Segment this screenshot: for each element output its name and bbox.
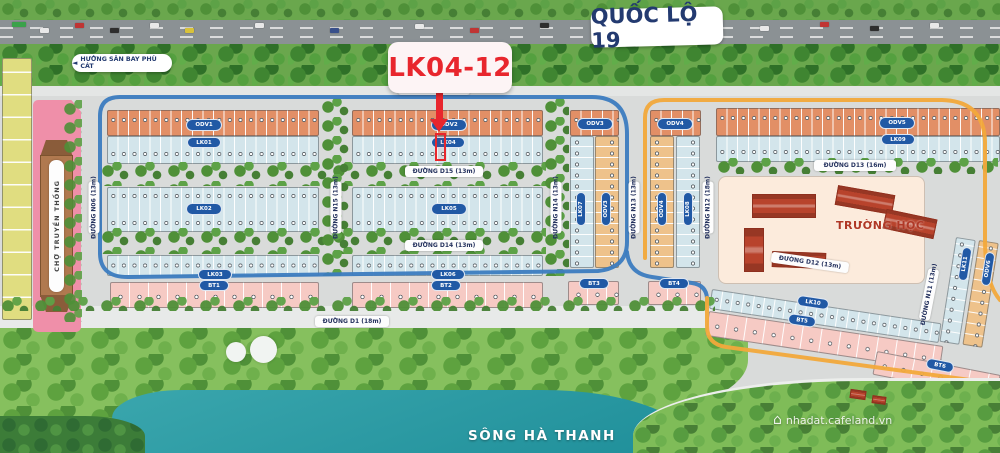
label-odv4: ODV4 xyxy=(657,192,667,226)
road-label-d13: ĐƯỜNG D13 (16m) xyxy=(814,160,896,171)
callout-arrow-shaft xyxy=(436,90,443,121)
label-lk09: LK09 xyxy=(881,134,915,145)
label-odv5: ODV5 xyxy=(879,117,915,129)
road-label-n12: ĐƯỜNG N12 (18m) xyxy=(703,182,714,234)
road-label-d1: ĐƯỜNG D1 (18m) xyxy=(315,316,389,327)
label-lk07: LK07 xyxy=(576,192,586,226)
label-odv3-header: ODV3 xyxy=(577,118,613,130)
river-label: SÔNG HÀ THANH xyxy=(468,428,616,444)
highlighted-lot-lk04-12 xyxy=(435,133,446,161)
label-odv1: ODV1 xyxy=(186,119,222,131)
callout-arrow-head xyxy=(430,119,448,132)
label-odv3: ODV3 xyxy=(601,192,611,226)
road-label-d15: ĐƯỜNG D15 (13m) xyxy=(405,166,483,177)
direction-sign-label: HƯỚNG SÂN BAY PHÙ CÁT xyxy=(80,56,172,70)
label-bt1: BT1 xyxy=(199,280,229,291)
watermark-text: nhadat.cafeland.vn xyxy=(786,414,892,427)
label-odv4-header: ODV4 xyxy=(657,118,693,130)
watermark: ⌂ nhadat.cafeland.vn xyxy=(773,412,892,428)
site-plan-map: CHỢ TRUYỀN THỐNG ODV1 xyxy=(0,0,1000,453)
callout-box: LK04-12 xyxy=(388,42,512,93)
road-label-n15: ĐƯỜNG N15 (13m) xyxy=(331,182,342,234)
road-label-n13: ĐƯỜNG N13 (13m) xyxy=(629,182,640,234)
label-lk05: LK05 xyxy=(431,203,467,215)
label-lk02: LK02 xyxy=(186,203,222,215)
road-blue-extension xyxy=(627,252,707,298)
riverbank-bushes xyxy=(0,416,145,453)
road-label-n06: ĐƯỜNG N06 (13m) xyxy=(89,182,100,234)
left-arrow-icon: ◄ xyxy=(72,59,77,67)
label-bt2: BT2 xyxy=(431,280,461,291)
road-label-n14: ĐƯỜNG N14 (13m) xyxy=(551,182,562,234)
label-lk08: LK08 xyxy=(683,192,693,226)
road-orange-loop xyxy=(645,100,1000,300)
label-bt4: BT4 xyxy=(659,278,689,289)
highway-sign: QUỐC LỘ 19 xyxy=(591,6,724,47)
watermark-house-icon: ⌂ xyxy=(773,412,782,428)
label-lk01: LK01 xyxy=(187,137,221,148)
direction-sign: ◄ HƯỚNG SÂN BAY PHÙ CÁT xyxy=(72,54,172,72)
road-orange-diagonal xyxy=(707,298,1000,384)
label-lk06: LK06 xyxy=(431,269,465,280)
road-blue-loop xyxy=(100,97,627,277)
school-label: TRƯỜNG HỌC xyxy=(836,219,924,232)
road-label-d14: ĐƯỜNG D14 (13m) xyxy=(405,240,483,251)
label-bt3: BT3 xyxy=(579,278,609,289)
label-lk03: LK03 xyxy=(198,269,232,280)
